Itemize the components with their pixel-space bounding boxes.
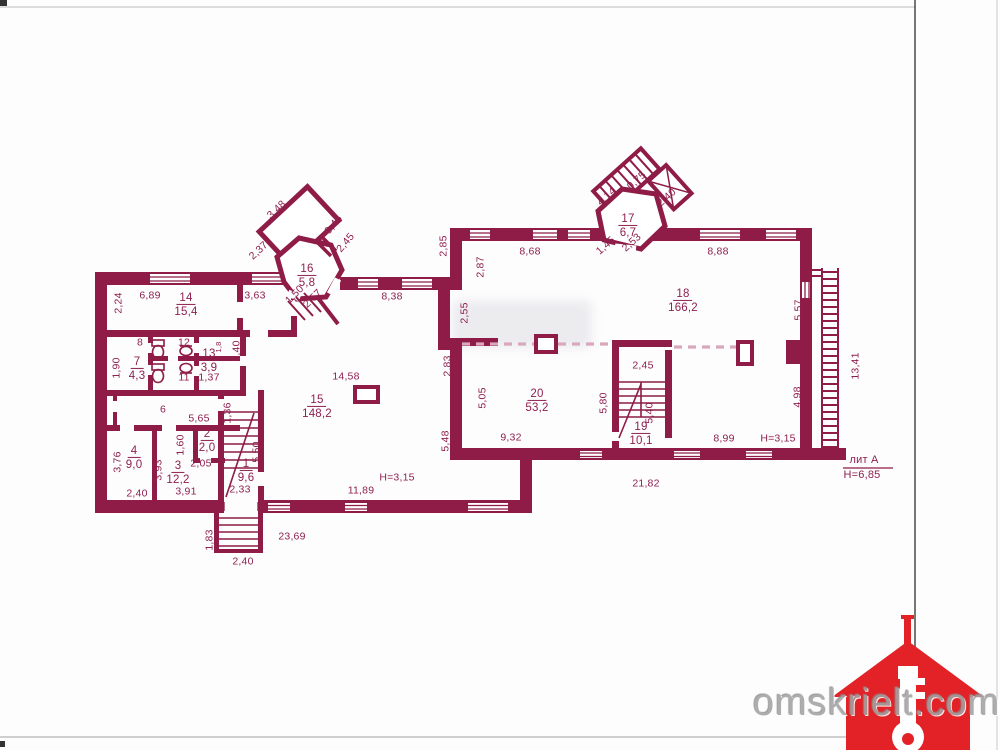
- dimension-label: 5,80: [598, 392, 609, 413]
- dimension-label: 5: [98, 409, 104, 420]
- dimension-label: 14,58: [332, 371, 359, 382]
- dimension-label: 3,63: [244, 290, 265, 301]
- dimension-label: 5,48: [440, 430, 451, 451]
- dimension-label: 13,41: [850, 352, 861, 379]
- dimension-label: 6: [160, 404, 166, 415]
- room-label: 49,0: [126, 445, 143, 471]
- dimension-label: 1,83: [204, 529, 215, 550]
- watermark-text: omskrielt.com: [753, 682, 1000, 725]
- room-label: 74,3: [129, 356, 146, 382]
- toilet-icon: [152, 364, 164, 383]
- room-label: 22,0: [199, 428, 216, 454]
- watermark-house-icon: [820, 610, 1000, 750]
- dimension-label: 5,50: [251, 441, 262, 462]
- dimension-label: 2,55: [459, 302, 470, 323]
- dimension-label: 8,88: [707, 246, 728, 257]
- dimension-label: 6,89: [139, 290, 160, 301]
- dimension-label: 3,93: [153, 459, 164, 480]
- dimension-label: 1,60: [175, 434, 186, 455]
- dimension-label: 2,87: [475, 256, 486, 277]
- dimension-label: 8,99: [713, 433, 734, 444]
- fire-escape-ladder: [812, 268, 838, 452]
- dimension-label: 23,69: [278, 531, 305, 542]
- scanned-floor-plan-page: 1415,46,892,243,63165,83,482,370,452,451…: [0, 0, 1000, 750]
- stairs-door-opening: [224, 500, 258, 513]
- dimension-label: 9,32: [500, 432, 521, 443]
- dimension-label: 11,89: [348, 485, 375, 496]
- toilet-icon: [152, 340, 164, 359]
- dimension-label: 4,98: [792, 386, 803, 407]
- dimension-label: 5,65: [188, 413, 209, 424]
- dimension-label: 2,83: [442, 355, 453, 376]
- dimension-label: 1,90: [111, 357, 122, 378]
- exterior-stairs-treads: [219, 518, 258, 546]
- room-label: 15148,2: [302, 394, 332, 420]
- dimension-label: 8,38: [381, 291, 402, 302]
- room-label: 18166,2: [668, 288, 698, 314]
- dimension-label: 2,85: [438, 235, 449, 256]
- room-label: 1910,1: [629, 421, 652, 447]
- dashed-partition: [462, 344, 736, 347]
- dimension-label: 2,24: [113, 292, 124, 313]
- building-height-label: H=6,85: [844, 470, 881, 482]
- dimension-label: 2,05: [190, 458, 211, 469]
- dimension-label: 11: [178, 372, 189, 383]
- dimension-label: 8: [137, 337, 143, 348]
- dimension-label: 2,33: [229, 484, 250, 495]
- dimension-label: 1,36: [222, 402, 233, 423]
- dimension-label: 5,40: [231, 340, 242, 361]
- dimension-label: 3,76: [112, 451, 123, 472]
- liter-label: лит А: [850, 455, 879, 467]
- dimension-label: 5,05: [477, 387, 488, 408]
- dimension-label: 5,57: [793, 299, 804, 320]
- dimension-label: 1,37: [198, 372, 219, 383]
- dimension-label: 3,91: [175, 486, 196, 497]
- dimension-label: H=3,15: [760, 433, 795, 444]
- dimension-label: 12: [178, 337, 190, 348]
- room-label: 312,2: [166, 460, 189, 486]
- dimension-label: 8,68: [519, 246, 540, 257]
- dimension-label: 2,40: [232, 556, 253, 567]
- dimension-label: 2,45: [632, 360, 653, 371]
- dimension-label: 21,82: [632, 478, 659, 489]
- room-label: 2053,2: [525, 388, 548, 414]
- dimension-label: H=3,15: [379, 472, 414, 483]
- dimension-label: 2,40: [126, 488, 147, 499]
- room-label: 1415,4: [174, 292, 197, 318]
- dimension-label: 1,8: [215, 341, 223, 352]
